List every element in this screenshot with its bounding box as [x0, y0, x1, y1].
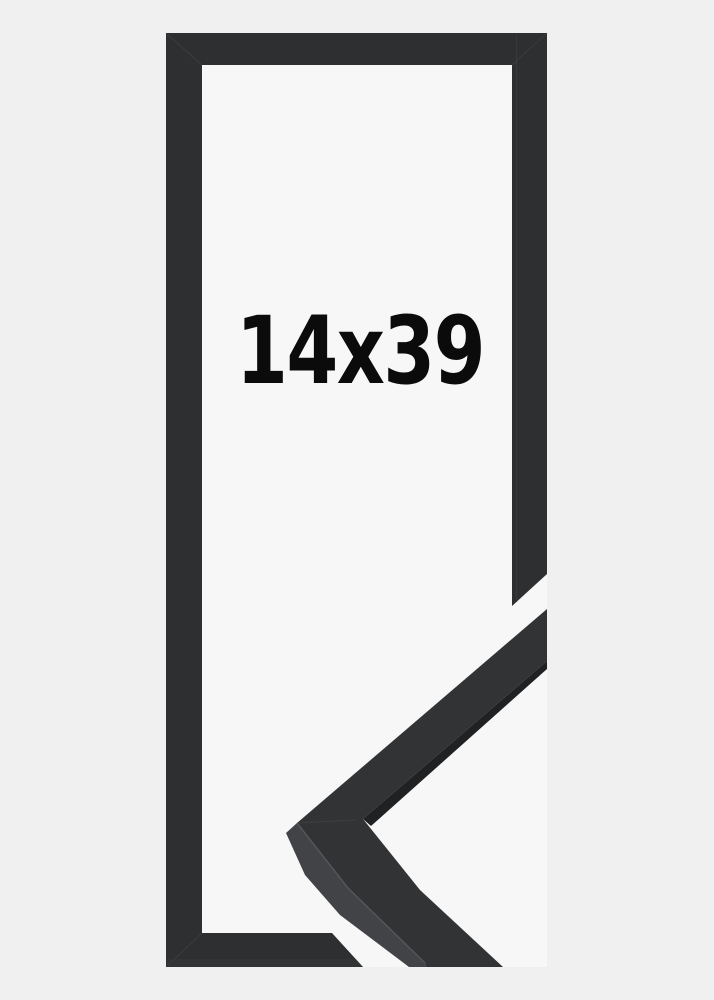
frame-right-bar-cut: [512, 33, 547, 606]
product-image-canvas: 14x39: [0, 0, 714, 1000]
frame-product-photo: 14x39: [0, 0, 714, 1000]
frame-top-bar: [166, 33, 547, 65]
size-label: 14x39: [236, 297, 484, 406]
frame-left-bar: [166, 33, 202, 967]
bottom-bar-edge-strip: [166, 959, 363, 967]
